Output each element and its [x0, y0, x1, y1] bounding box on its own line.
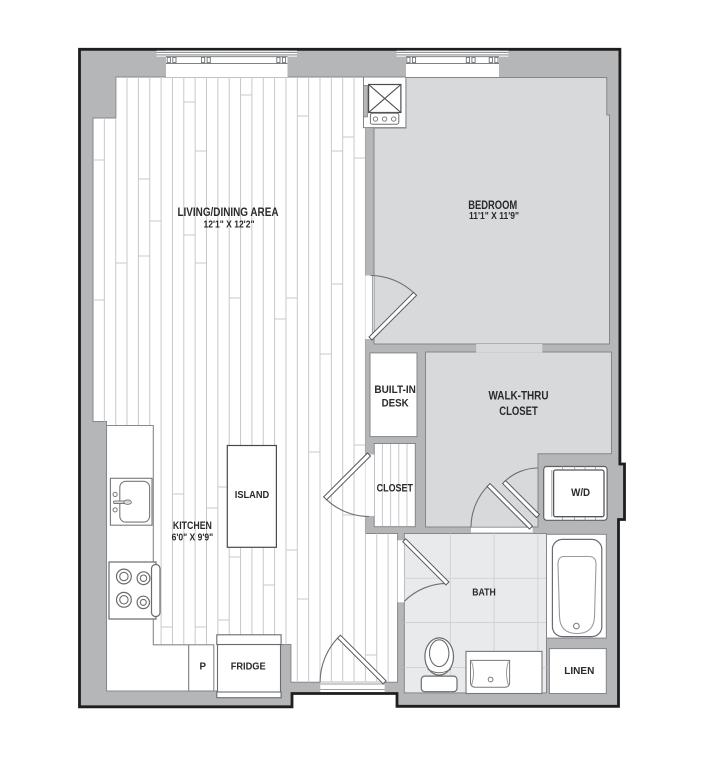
svg-text:LINEN: LINEN — [564, 665, 594, 677]
svg-text:11'1" X 11'9": 11'1" X 11'9" — [469, 211, 519, 222]
svg-text:LIVING/DINING AREA: LIVING/DINING AREA — [178, 205, 279, 219]
svg-text:WALK-THRU: WALK-THRU — [489, 389, 549, 403]
svg-text:DESK: DESK — [382, 397, 409, 409]
svg-text:ISLAND: ISLAND — [235, 490, 270, 501]
svg-text:BATH: BATH — [472, 586, 496, 598]
svg-text:BUILT-IN: BUILT-IN — [374, 384, 416, 396]
svg-text:CLOSET: CLOSET — [499, 404, 538, 418]
svg-text:W/D: W/D — [571, 487, 590, 499]
svg-text:BEDROOM: BEDROOM — [468, 198, 517, 212]
svg-text:P: P — [199, 661, 206, 673]
svg-text:6'0" X 9'9": 6'0" X 9'9" — [172, 532, 214, 543]
svg-text:FRIDGE: FRIDGE — [231, 661, 266, 673]
svg-text:CLOSET: CLOSET — [377, 482, 414, 494]
svg-text:KITCHEN: KITCHEN — [173, 520, 212, 532]
svg-text:12'1" X 12'2": 12'1" X 12'2" — [204, 220, 255, 231]
